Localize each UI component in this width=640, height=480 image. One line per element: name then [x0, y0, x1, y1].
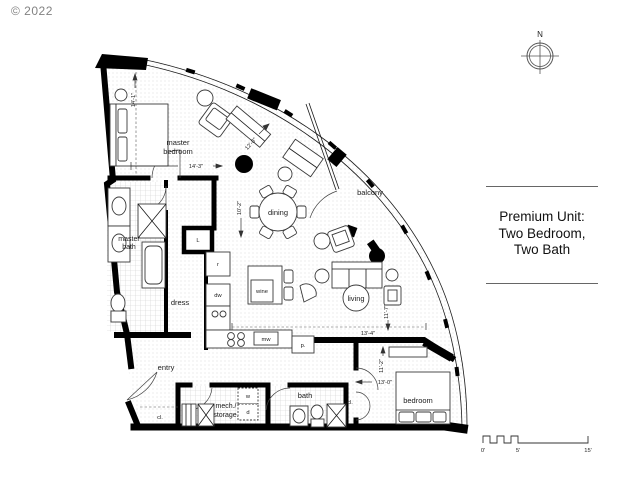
dim-master-bedroom-width: 14'-3"	[189, 164, 203, 170]
room-label-master-bedroom-2: bedroom	[163, 147, 193, 156]
scale-label-15: 15'	[584, 448, 592, 454]
dim-dining-depth: 10'-2"	[237, 201, 243, 215]
scale-label-5: 5'	[516, 448, 520, 454]
dim-bedroom-width: 13'-0"	[378, 380, 392, 386]
room-label-master-bath-1: master	[118, 236, 140, 243]
room-label-balcony: balcony	[357, 188, 383, 197]
panel-bottom-rule	[486, 283, 598, 284]
dim-bedroom-depth: 11'-2"	[379, 359, 385, 373]
room-label-dining: dining	[268, 208, 288, 217]
bath-fixtures	[290, 404, 346, 427]
floor-plan-page: © 2022 Premium Unit: Two Bedroom, Two Ba…	[0, 0, 640, 480]
room-label-dress: dress	[171, 298, 190, 307]
appliance-label-wine: wine	[255, 289, 268, 295]
side-table	[197, 90, 213, 106]
appliance-label-microwave: mw	[261, 337, 271, 343]
appliance-label-dryer: d	[246, 410, 249, 416]
unit-title-line1: Premium Unit:	[486, 209, 598, 226]
north-label: N	[537, 30, 543, 39]
copyright-text: © 2022	[11, 4, 53, 18]
unit-info-panel: Premium Unit: Two Bedroom, Two Bath	[486, 186, 598, 284]
room-label-bedroom: bedroom	[403, 396, 433, 405]
dim-living-depth: 11'-7"	[384, 305, 390, 319]
dim-master-bedroom-depth: 14'-1"	[131, 93, 137, 107]
scale-label-0: 0'	[481, 448, 485, 454]
north-compass: N	[521, 30, 559, 74]
appliance-label-refrigerator: r	[217, 262, 219, 268]
closet-label-entry: cl.	[157, 415, 163, 421]
unit-title-line2: Two Bedroom,	[486, 226, 598, 243]
appliance-label-dishwasher: dw	[214, 293, 222, 299]
room-label-entry: entry	[158, 363, 175, 372]
room-label-master-bath-2: bath	[122, 244, 136, 251]
room-label-bath: bath	[298, 391, 313, 400]
appliance-label-pantry: p.	[301, 343, 306, 349]
unit-title-line3: Two Bath	[486, 242, 598, 259]
room-label-master-bedroom-1: master	[167, 138, 190, 147]
scale-bar: 0' 5' 15'	[481, 436, 592, 454]
dim-living-width: 13'-4"	[361, 331, 375, 337]
column	[235, 155, 253, 173]
appliance-label-washer: w	[245, 394, 251, 400]
room-label-mech-1: mech./	[215, 403, 236, 410]
room-label-living: living	[347, 294, 364, 303]
room-label-mech-2: storage.	[213, 412, 238, 419]
closet-label-hall: cl.	[347, 400, 353, 406]
